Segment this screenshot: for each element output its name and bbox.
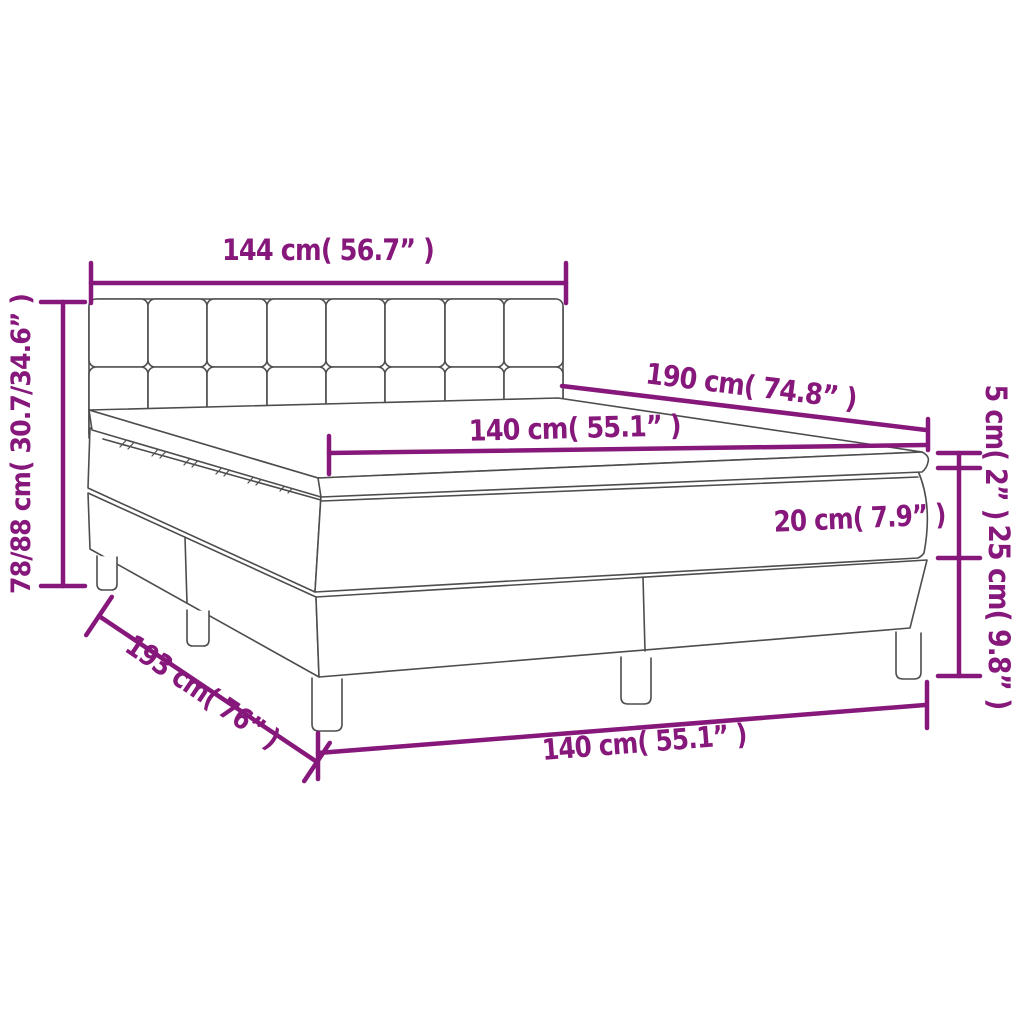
headboard-tuft (326, 299, 385, 367)
dimension-label-base-length: 193 cm( 76” ) (119, 628, 286, 756)
bed-leg (187, 610, 209, 646)
dimension-line-headboard-width (91, 263, 566, 303)
dimension-label-base-height: 25 cm( 9.8” ) (982, 525, 1016, 710)
headboard-tuft (148, 299, 207, 367)
headboard-tuft (504, 299, 563, 367)
headboard-tuft (267, 299, 326, 367)
bed-leg (97, 556, 117, 590)
dimension-line-right-heights (938, 453, 980, 676)
bed-leg (621, 657, 651, 704)
headboard-tuft (385, 299, 445, 367)
dimension-label-mattress-width-top: 140 cm( 55.1” ) (468, 408, 681, 448)
diagram-canvas: 144 cm( 56.7” ) 190 cm( 74.8” ) 140 cm( … (0, 0, 1024, 1024)
dimension-label-total-height: 78/88 cm( 30.7/34.6” ) (6, 294, 37, 594)
bed-dimension-diagram: 144 cm( 56.7” ) 190 cm( 74.8” ) 140 cm( … (0, 0, 1024, 1024)
dimension-label-base-width-bottom: 140 cm( 55.1” ) (541, 717, 748, 767)
bed-leg (312, 678, 342, 731)
dimension-line-total-height (41, 302, 85, 586)
dimension-label-headboard-width: 144 cm( 56.7” ) (222, 233, 434, 267)
bed-leg (896, 632, 921, 679)
headboard-tuft (207, 299, 267, 367)
headboard-tuft (445, 299, 504, 367)
headboard-tuft (89, 299, 148, 367)
dimension-label-topper-thickness: 5 cm( 2” ) (979, 385, 1013, 520)
